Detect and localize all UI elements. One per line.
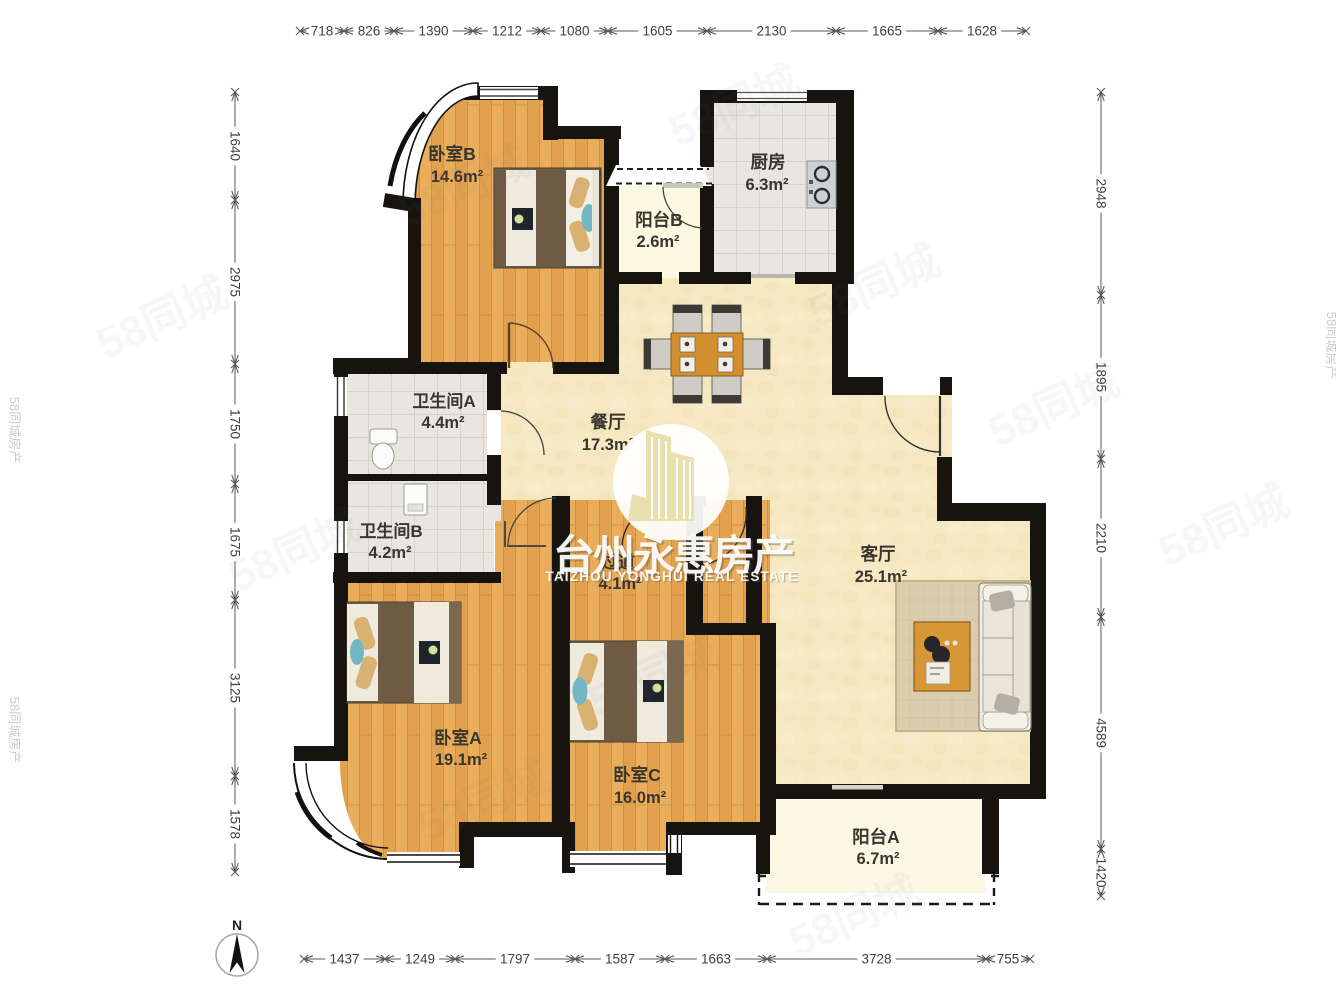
svg-text:1437: 1437 bbox=[329, 952, 359, 967]
svg-text:餐厅: 餐厅 bbox=[591, 412, 626, 432]
svg-text:1587: 1587 bbox=[605, 952, 635, 967]
svg-text:826: 826 bbox=[358, 24, 381, 39]
svg-text:16.0m²: 16.0m² bbox=[614, 789, 667, 807]
svg-text:755: 755 bbox=[997, 952, 1020, 967]
svg-text:客厅: 客厅 bbox=[860, 544, 896, 564]
svg-text:阳台B: 阳台B bbox=[635, 210, 683, 230]
svg-text:1420: 1420 bbox=[1094, 857, 1109, 887]
svg-text:1249: 1249 bbox=[405, 952, 435, 967]
svg-text:25.1m²: 25.1m² bbox=[855, 568, 908, 586]
svg-text:1797: 1797 bbox=[500, 952, 530, 967]
svg-text:1628: 1628 bbox=[967, 24, 997, 39]
svg-text:2975: 2975 bbox=[228, 267, 243, 297]
svg-text:4589: 4589 bbox=[1094, 718, 1109, 748]
svg-text:58同城房产: 58同城房产 bbox=[1324, 312, 1336, 378]
svg-text:阳台A: 阳台A bbox=[852, 827, 900, 847]
svg-text:2948: 2948 bbox=[1094, 178, 1109, 208]
svg-text:1578: 1578 bbox=[228, 809, 243, 839]
svg-text:3125: 3125 bbox=[228, 673, 243, 703]
svg-text:1212: 1212 bbox=[492, 24, 522, 39]
svg-text:1750: 1750 bbox=[228, 409, 243, 439]
svg-text:卧室C: 卧室C bbox=[613, 765, 661, 785]
svg-text:厨房: 厨房 bbox=[751, 152, 786, 172]
svg-text:1663: 1663 bbox=[701, 952, 731, 967]
svg-text:58同城房产: 58同城房产 bbox=[7, 697, 22, 763]
svg-text:4.2m²: 4.2m² bbox=[368, 544, 412, 562]
svg-text:1390: 1390 bbox=[418, 24, 448, 39]
svg-text:卫生间B: 卫生间B bbox=[359, 521, 422, 541]
svg-text:1640: 1640 bbox=[228, 131, 243, 161]
svg-text:718: 718 bbox=[311, 24, 334, 39]
svg-text:6.3m²: 6.3m² bbox=[745, 176, 789, 194]
svg-text:2130: 2130 bbox=[756, 24, 786, 39]
svg-text:1080: 1080 bbox=[559, 24, 589, 39]
svg-text:卫生间A: 卫生间A bbox=[412, 391, 475, 411]
svg-text:6.7m²: 6.7m² bbox=[856, 850, 900, 868]
svg-text:2210: 2210 bbox=[1094, 523, 1109, 553]
svg-text:1605: 1605 bbox=[642, 24, 672, 39]
svg-text:58同城房产: 58同城房产 bbox=[7, 397, 22, 463]
svg-text:19.1m²: 19.1m² bbox=[435, 751, 488, 769]
svg-text:卧室A: 卧室A bbox=[434, 728, 482, 748]
svg-text:N: N bbox=[232, 917, 242, 933]
svg-text:4.4m²: 4.4m² bbox=[421, 414, 465, 432]
svg-text:2.6m²: 2.6m² bbox=[636, 233, 680, 251]
svg-text:3728: 3728 bbox=[861, 952, 891, 967]
svg-text:1665: 1665 bbox=[872, 24, 902, 39]
svg-text:TAIZHOU YONGHUI REAL ESTATE: TAIZHOU YONGHUI REAL ESTATE bbox=[545, 569, 798, 584]
